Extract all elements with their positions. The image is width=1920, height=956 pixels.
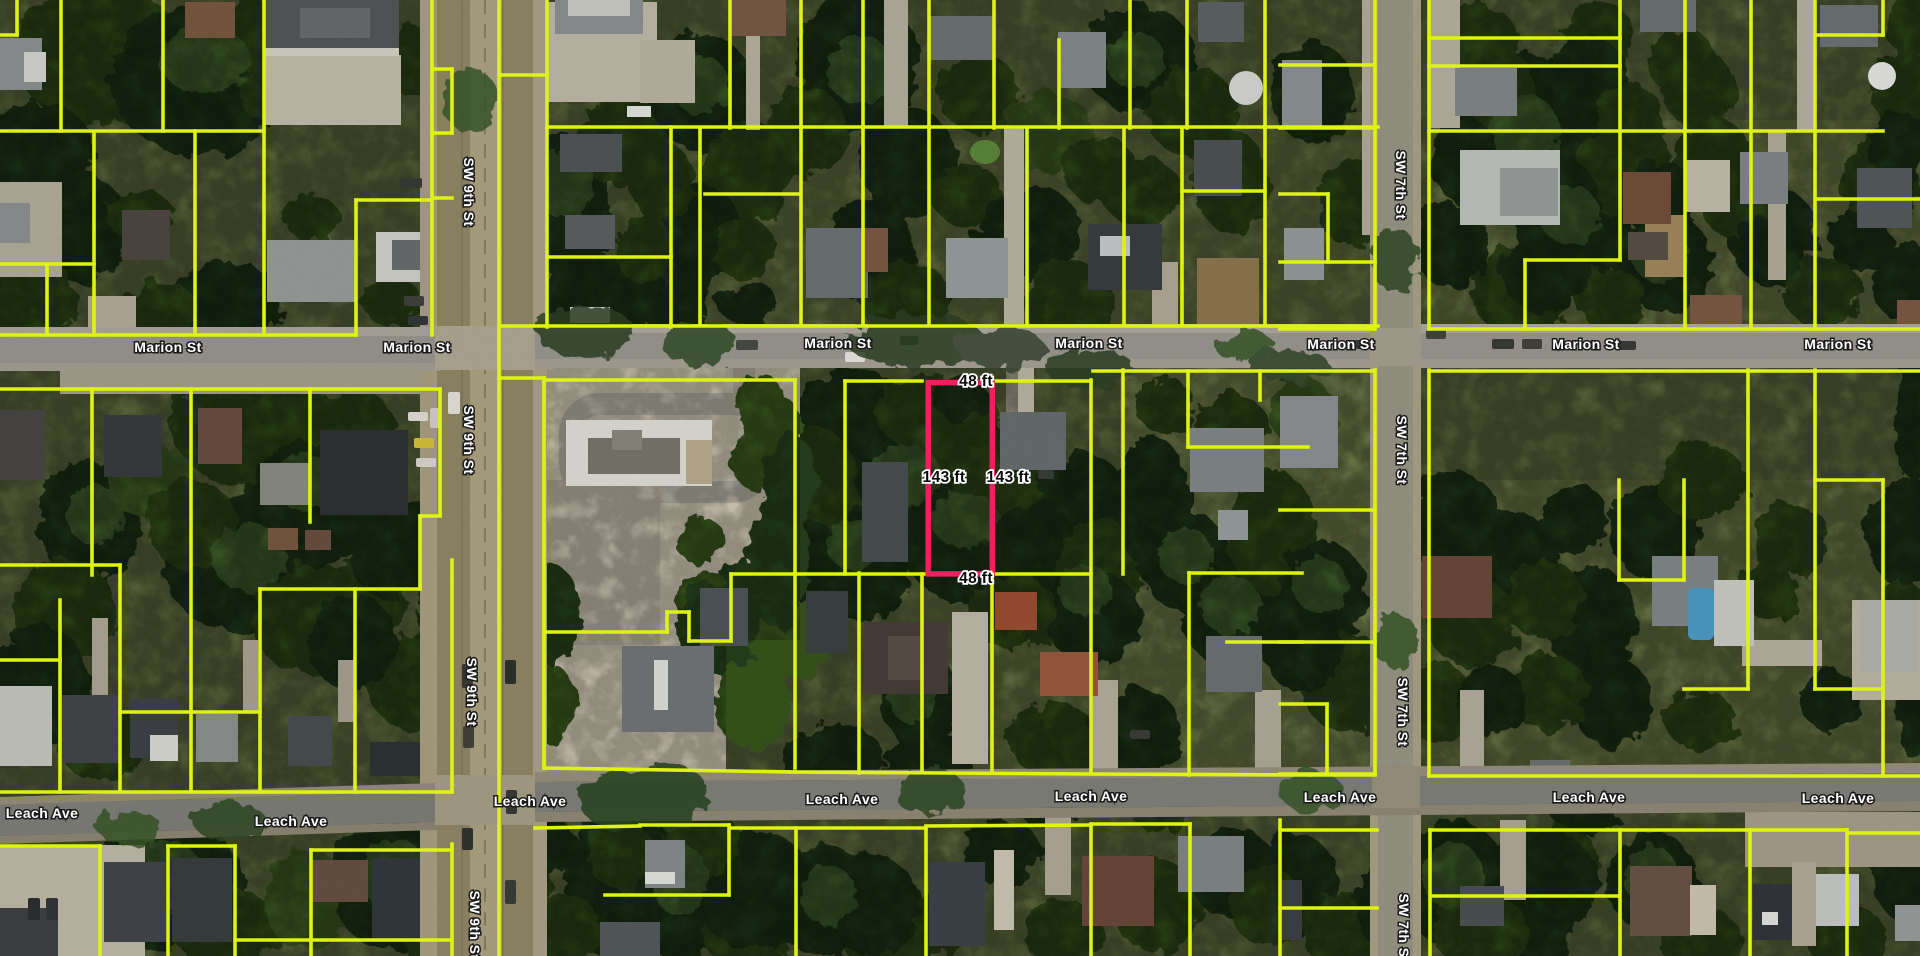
svg-text:Leach Ave: Leach Ave (1553, 789, 1626, 805)
svg-text:143 ft: 143 ft (987, 469, 1030, 486)
svg-text:SW 9th St: SW 9th St (467, 891, 483, 956)
svg-text:SW 9th St: SW 9th St (464, 658, 480, 727)
svg-text:Marion St: Marion St (1055, 335, 1122, 351)
svg-text:SW 7th St: SW 7th St (1393, 151, 1409, 220)
svg-text:48 ft: 48 ft (959, 373, 993, 390)
svg-text:143 ft: 143 ft (923, 469, 966, 486)
svg-text:Marion St: Marion St (804, 335, 871, 351)
svg-text:Leach Ave: Leach Ave (494, 793, 567, 809)
svg-text:SW 9th St: SW 9th St (461, 158, 477, 227)
svg-text:SW 7th St: SW 7th St (1395, 678, 1411, 747)
svg-text:SW 7th St: SW 7th St (1396, 894, 1412, 956)
svg-text:Leach Ave: Leach Ave (255, 813, 328, 829)
svg-text:Leach Ave: Leach Ave (806, 791, 879, 807)
svg-text:Leach Ave: Leach Ave (1055, 788, 1128, 804)
svg-text:Marion St: Marion St (134, 339, 201, 355)
svg-text:Marion St: Marion St (1552, 336, 1619, 352)
svg-text:SW 9th St: SW 9th St (461, 406, 477, 475)
svg-text:Leach Ave: Leach Ave (6, 805, 79, 821)
svg-text:Marion St: Marion St (1307, 336, 1374, 352)
svg-text:SW 7th St: SW 7th St (1394, 416, 1410, 485)
svg-text:Leach Ave: Leach Ave (1304, 789, 1377, 805)
svg-text:48 ft: 48 ft (959, 570, 993, 587)
svg-text:Marion St: Marion St (1804, 336, 1871, 352)
svg-text:Leach Ave: Leach Ave (1802, 790, 1875, 806)
svg-text:Marion St: Marion St (383, 339, 450, 355)
